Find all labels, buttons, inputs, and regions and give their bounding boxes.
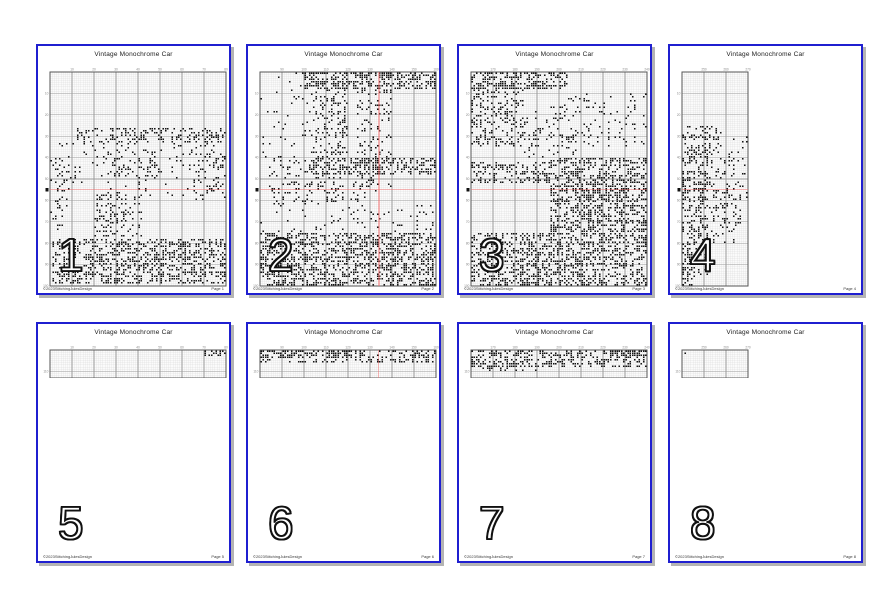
page-number-overlay: 1 xyxy=(58,232,84,278)
svg-text:50: 50 xyxy=(45,177,49,181)
page-footer: ©2023StitchingJulesDesign Page 8 xyxy=(675,554,856,559)
page-footer: ©2023StitchingJulesDesign Page 7 xyxy=(464,554,645,559)
svg-text:90: 90 xyxy=(280,67,284,71)
page-1: Vintage Monochrome Car 10203040506070801… xyxy=(36,44,231,295)
copyright-text: ©2023StitchingJulesDesign xyxy=(253,554,302,559)
page-title: Vintage Monochrome Car xyxy=(248,329,439,336)
copyright-text: ©2023StitchingJulesDesign xyxy=(43,286,92,291)
stitch-grid: 1020304050607080110 xyxy=(38,345,229,380)
copyright-text: ©2023StitchingJulesDesign xyxy=(43,554,92,559)
svg-text:90: 90 xyxy=(45,263,49,267)
page-footer: ©2023StitchingJulesDesign Page 3 xyxy=(464,286,645,291)
footer-page-label: Page 1 xyxy=(211,286,224,291)
copyright-text: ©2023StitchingJulesDesign xyxy=(675,554,724,559)
page-number-overlay: 6 xyxy=(268,500,294,546)
svg-text:160: 160 xyxy=(433,67,439,71)
footer-page-label: Page 8 xyxy=(843,554,856,559)
svg-text:20: 20 xyxy=(92,67,96,71)
footer-page-label: Page 5 xyxy=(211,554,224,559)
page-number-overlay: 4 xyxy=(690,232,716,278)
stitch-grid: 250260270110 xyxy=(670,345,861,380)
page-title: Vintage Monochrome Car xyxy=(670,51,861,58)
svg-text:60: 60 xyxy=(45,199,49,203)
page-title: Vintage Monochrome Car xyxy=(670,329,861,336)
svg-text:70: 70 xyxy=(255,220,259,224)
svg-text:130: 130 xyxy=(367,67,373,71)
page-title: Vintage Monochrome Car xyxy=(459,51,650,58)
footer-page-label: Page 4 xyxy=(843,286,856,291)
svg-text:120: 120 xyxy=(345,67,351,71)
page-2: Vintage Monochrome Car 90100110120130140… xyxy=(246,44,441,295)
page-title: Vintage Monochrome Car xyxy=(38,51,229,58)
footer-page-label: Page 6 xyxy=(421,554,434,559)
svg-text:100: 100 xyxy=(301,67,307,71)
copyright-text: ©2023StitchingJulesDesign xyxy=(253,286,302,291)
svg-text:140: 140 xyxy=(389,67,395,71)
page-footer: ©2023StitchingJulesDesign Page 6 xyxy=(253,554,434,559)
svg-text:60: 60 xyxy=(180,67,184,71)
svg-text:150: 150 xyxy=(411,67,417,71)
svg-text:50: 50 xyxy=(255,177,259,181)
page-footer: ©2023StitchingJulesDesign Page 2 xyxy=(253,286,434,291)
copyright-text: ©2023StitchingJulesDesign xyxy=(675,286,724,291)
copyright-text: ©2023StitchingJulesDesign xyxy=(464,286,513,291)
page-title: Vintage Monochrome Car xyxy=(248,51,439,58)
svg-text:30: 30 xyxy=(255,134,259,138)
svg-text:10: 10 xyxy=(45,92,49,96)
page-title: Vintage Monochrome Car xyxy=(38,329,229,336)
svg-text:10: 10 xyxy=(70,67,74,71)
svg-text:70: 70 xyxy=(45,220,49,224)
svg-text:40: 40 xyxy=(136,67,140,71)
svg-text:60: 60 xyxy=(255,199,259,203)
page-6: Vintage Monochrome Car 90100110120130140… xyxy=(246,322,441,563)
stitch-grid-svg: 1020304050607080110 xyxy=(38,345,229,380)
svg-text:40: 40 xyxy=(45,156,49,160)
svg-text:50: 50 xyxy=(158,67,162,71)
svg-text:80: 80 xyxy=(255,241,259,245)
page-3: Vintage Monochrome Car 17018019020021022… xyxy=(457,44,652,295)
footer-page-label: Page 7 xyxy=(632,554,645,559)
page-footer: ©2023StitchingJulesDesign Page 5 xyxy=(43,554,224,559)
copyright-text: ©2023StitchingJulesDesign xyxy=(464,554,513,559)
page-title: Vintage Monochrome Car xyxy=(459,329,650,336)
svg-text:20: 20 xyxy=(255,113,259,117)
page-number-overlay: 7 xyxy=(479,500,505,546)
stitch-grid-svg: 250260270110 xyxy=(670,345,861,380)
svg-text:80: 80 xyxy=(45,241,49,245)
page-footer: ©2023StitchingJulesDesign Page 4 xyxy=(675,286,856,291)
footer-page-label: Page 3 xyxy=(632,286,645,291)
page-8: Vintage Monochrome Car 250260270110 8 ©2… xyxy=(668,322,863,563)
svg-text:80: 80 xyxy=(224,67,228,71)
svg-text:70: 70 xyxy=(202,67,206,71)
page-number-overlay: 5 xyxy=(58,500,84,546)
svg-text:40: 40 xyxy=(255,156,259,160)
svg-text:20: 20 xyxy=(45,113,49,117)
svg-text:30: 30 xyxy=(114,67,118,71)
page-4: Vintage Monochrome Car 25026027010203040… xyxy=(668,44,863,295)
svg-text:110: 110 xyxy=(323,67,328,71)
svg-text:90: 90 xyxy=(255,263,259,267)
footer-page-label: Page 2 xyxy=(421,286,434,291)
page-footer: ©2023StitchingJulesDesign Page 1 xyxy=(43,286,224,291)
stitch-grid-svg: 90100110120130140150160110 xyxy=(248,345,439,380)
page-5: Vintage Monochrome Car 10203040506070801… xyxy=(36,322,231,563)
svg-text:30: 30 xyxy=(45,134,49,138)
stitch-grid: 170180190200210220230240110 xyxy=(459,345,650,380)
stitch-grid: 90100110120130140150160110 xyxy=(248,345,439,380)
svg-text:10: 10 xyxy=(255,92,259,96)
stitch-grid-svg: 170180190200210220230240110 xyxy=(459,345,650,380)
page-number-overlay: 8 xyxy=(690,500,716,546)
page-7: Vintage Monochrome Car 17018019020021022… xyxy=(457,322,652,563)
page-number-overlay: 3 xyxy=(479,232,505,278)
page-number-overlay: 2 xyxy=(268,232,294,278)
